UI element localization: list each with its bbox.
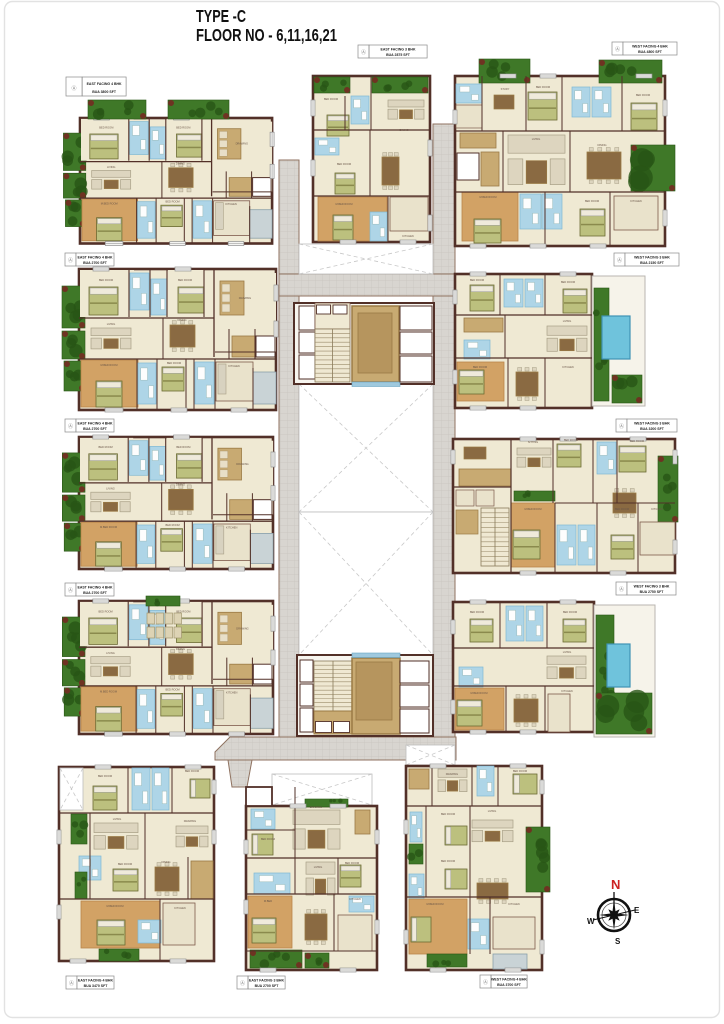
svg-text:Ⓐ: Ⓐ <box>68 423 73 430</box>
svg-text:WEST FACING 3 BHK: WEST FACING 3 BHK <box>634 256 670 260</box>
svg-text:BED ROOM: BED ROOM <box>585 199 599 203</box>
svg-text:E: E <box>634 906 640 915</box>
svg-text:KITCHEN: KITCHEN <box>651 507 663 511</box>
svg-text:WEST FACING 3 BHK: WEST FACING 3 BHK <box>634 585 670 589</box>
svg-text:KITCHEN: KITCHEN <box>630 199 642 203</box>
svg-text:Ⓐ: Ⓐ <box>615 46 620 53</box>
svg-text:KITCHEN: KITCHEN <box>561 689 573 693</box>
svg-text:W: W <box>587 917 595 926</box>
svg-text:M.BED ROOM: M.BED ROOM <box>479 195 496 199</box>
svg-text:M.BED ROOM: M.BED ROOM <box>100 525 117 529</box>
svg-text:LIVING: LIVING <box>107 322 116 326</box>
svg-text:BUA 3800 SFT: BUA 3800 SFT <box>92 90 117 94</box>
svg-text:M.BED ROOM: M.BED ROOM <box>106 904 123 908</box>
svg-text:BED ROOM: BED ROOM <box>166 523 180 527</box>
svg-text:BUA 4800 SFT: BUA 4800 SFT <box>638 50 663 54</box>
svg-text:DINING: DINING <box>176 483 185 487</box>
svg-text:DRAWING: DRAWING <box>236 462 248 466</box>
svg-text:DRAWING: DRAWING <box>239 296 251 300</box>
svg-text:BUA 2150 SFT: BUA 2150 SFT <box>640 261 665 265</box>
svg-text:BUA 3470 SFT: BUA 3470 SFT <box>84 984 109 988</box>
svg-text:BED ROOM: BED ROOM <box>630 439 644 443</box>
svg-text:BED ROOM: BED ROOM <box>167 361 181 365</box>
svg-text:Ⓐ: Ⓐ <box>71 85 76 92</box>
svg-text:LIVING: LIVING <box>532 137 541 141</box>
svg-text:KITCHEN: KITCHEN <box>225 202 237 206</box>
svg-text:BUA 2700 SFT: BUA 2700 SFT <box>83 427 108 431</box>
svg-text:LIVING: LIVING <box>563 650 572 654</box>
svg-text:STUDY: STUDY <box>501 87 510 91</box>
svg-text:BED ROOM: BED ROOM <box>470 610 484 614</box>
svg-text:LIVING: LIVING <box>314 865 323 869</box>
svg-text:KITCHEN: KITCHEN <box>562 365 574 369</box>
svg-text:BED ROOM: BED ROOM <box>561 280 575 284</box>
svg-text:M.BED ROOM: M.BED ROOM <box>335 202 352 206</box>
svg-text:BED ROOM: BED ROOM <box>473 365 487 369</box>
svg-text:LIVING: LIVING <box>106 486 115 490</box>
svg-text:BED ROOM: BED ROOM <box>636 93 650 97</box>
svg-text:BED ROOM: BED ROOM <box>615 507 629 511</box>
svg-text:LIVING: LIVING <box>106 651 115 655</box>
svg-text:LIVING: LIVING <box>107 165 116 169</box>
svg-text:M.BED ROOM: M.BED ROOM <box>426 902 443 906</box>
svg-text:BED ROOM: BED ROOM <box>166 200 180 204</box>
svg-text:M.BED ROOM: M.BED ROOM <box>524 507 541 511</box>
svg-text:BED ROOM: BED ROOM <box>99 278 113 282</box>
svg-text:M.BED ROOM: M.BED ROOM <box>470 691 487 695</box>
svg-text:LIVING: LIVING <box>488 809 497 813</box>
svg-text:EAST FACING 3 BHK: EAST FACING 3 BHK <box>380 48 415 52</box>
svg-text:S: S <box>615 937 621 946</box>
svg-text:SITTING: SITTING <box>528 440 538 444</box>
svg-text:BED ROOM: BED ROOM <box>513 769 527 773</box>
svg-text:DRAWING: DRAWING <box>446 772 458 776</box>
svg-text:BED ROOM: BED ROOM <box>345 861 359 865</box>
svg-text:BUA 2750 SFT: BUA 2750 SFT <box>640 590 665 594</box>
svg-text:DINING: DINING <box>177 318 186 322</box>
svg-text:BED ROOM: BED ROOM <box>98 774 112 778</box>
svg-text:DINING: DINING <box>176 647 185 651</box>
svg-text:KITCHEN: KITCHEN <box>508 902 520 906</box>
svg-text:Ⓐ: Ⓐ <box>68 257 73 264</box>
svg-text:BED ROOM: BED ROOM <box>178 278 192 282</box>
svg-text:KITCHEN: KITCHEN <box>226 526 238 530</box>
svg-text:EAST FACING 3 BHK: EAST FACING 3 BHK <box>249 979 284 983</box>
svg-text:EAST FACING 4 BHK: EAST FACING 4 BHK <box>77 256 112 260</box>
svg-text:KITCHEN: KITCHEN <box>349 897 361 901</box>
svg-text:EAST FACING 4 BHK: EAST FACING 4 BHK <box>87 82 122 86</box>
svg-text:EAST FACING 4 BHK: EAST FACING 4 BHK <box>77 586 112 590</box>
svg-text:KITCHEN: KITCHEN <box>402 234 414 238</box>
svg-text:BED ROOM: BED ROOM <box>118 862 132 866</box>
svg-text:Ⓐ: Ⓐ <box>483 979 488 986</box>
svg-text:DRAWING: DRAWING <box>310 805 322 809</box>
svg-text:Ⓐ: Ⓐ <box>361 49 366 56</box>
svg-text:Ⓐ: Ⓐ <box>68 587 73 594</box>
svg-text:LIVING: LIVING <box>563 319 572 323</box>
svg-text:DRAWING: DRAWING <box>236 142 248 146</box>
svg-text:BED ROOM: BED ROOM <box>176 126 190 130</box>
svg-text:EAST FACING 4 BHK: EAST FACING 4 BHK <box>78 979 113 983</box>
svg-text:FLOOR NO - 6,11,16,21: FLOOR NO - 6,11,16,21 <box>196 25 337 45</box>
svg-text:BUA 2875 SFT: BUA 2875 SFT <box>386 53 411 57</box>
svg-text:BUA 3700 SFT: BUA 3700 SFT <box>497 983 522 987</box>
svg-text:BED ROOM: BED ROOM <box>337 162 351 166</box>
svg-text:BED ROOM: BED ROOM <box>536 85 550 89</box>
svg-text:N: N <box>611 877 620 892</box>
svg-text:BED ROOM: BED ROOM <box>470 278 484 282</box>
svg-text:BED ROOM: BED ROOM <box>185 769 199 773</box>
svg-text:BED ROOM: BED ROOM <box>564 438 578 442</box>
svg-text:WEST FACING 3 BHK: WEST FACING 3 BHK <box>634 422 670 426</box>
svg-text:WEST FACING 4 BHK: WEST FACING 4 BHK <box>491 978 527 982</box>
svg-text:DRAWING: DRAWING <box>236 626 248 630</box>
svg-text:DINING: DINING <box>399 128 408 132</box>
svg-text:LIVING: LIVING <box>113 817 122 821</box>
svg-text:BED ROOM: BED ROOM <box>441 859 455 863</box>
svg-text:KITCHEN: KITCHEN <box>174 906 186 910</box>
svg-text:WEST FACING 4 BHK: WEST FACING 4 BHK <box>632 45 668 49</box>
svg-text:Ⓐ: Ⓐ <box>619 423 624 430</box>
svg-text:BED ROOM: BED ROOM <box>166 688 180 692</box>
svg-text:BED ROOM: BED ROOM <box>99 445 113 449</box>
svg-text:KITCHEN: KITCHEN <box>228 364 240 368</box>
svg-text:DINING: DINING <box>176 161 185 165</box>
svg-text:M.BED: M.BED <box>264 899 272 903</box>
svg-text:M.BED ROOM: M.BED ROOM <box>100 690 117 694</box>
svg-text:Ⓐ: Ⓐ <box>617 257 622 264</box>
svg-text:DINING: DINING <box>161 860 170 864</box>
svg-text:BED ROOM: BED ROOM <box>176 445 190 449</box>
svg-text:DRAWING: DRAWING <box>184 819 196 823</box>
svg-text:DINING: DINING <box>597 143 606 147</box>
svg-text:BED ROOM: BED ROOM <box>261 837 275 841</box>
svg-text:BED ROOM: BED ROOM <box>324 97 338 101</box>
svg-text:BUA 2700 SFT: BUA 2700 SFT <box>83 591 108 595</box>
svg-text:M.BED ROOM: M.BED ROOM <box>101 201 118 205</box>
svg-text:EAST FACING 4 BHK: EAST FACING 4 BHK <box>77 422 112 426</box>
svg-text:TYPE -C: TYPE -C <box>196 6 246 26</box>
svg-text:BED ROOM: BED ROOM <box>441 812 455 816</box>
svg-text:BUA 2700 SFT: BUA 2700 SFT <box>255 984 280 988</box>
svg-text:KITCHEN: KITCHEN <box>226 690 238 694</box>
svg-text:M.BED ROOM: M.BED ROOM <box>100 363 117 367</box>
svg-text:Ⓐ: Ⓐ <box>619 586 624 593</box>
svg-text:BED ROOM: BED ROOM <box>99 609 113 613</box>
svg-text:Ⓐ: Ⓐ <box>69 980 74 987</box>
svg-text:BED ROOM: BED ROOM <box>99 126 113 130</box>
svg-text:BUA 3200 SFT: BUA 3200 SFT <box>640 427 665 431</box>
svg-text:BED ROOM: BED ROOM <box>563 610 577 614</box>
svg-text:BUA 2700 SFT: BUA 2700 SFT <box>83 261 108 265</box>
svg-text:Ⓐ: Ⓐ <box>240 980 245 987</box>
